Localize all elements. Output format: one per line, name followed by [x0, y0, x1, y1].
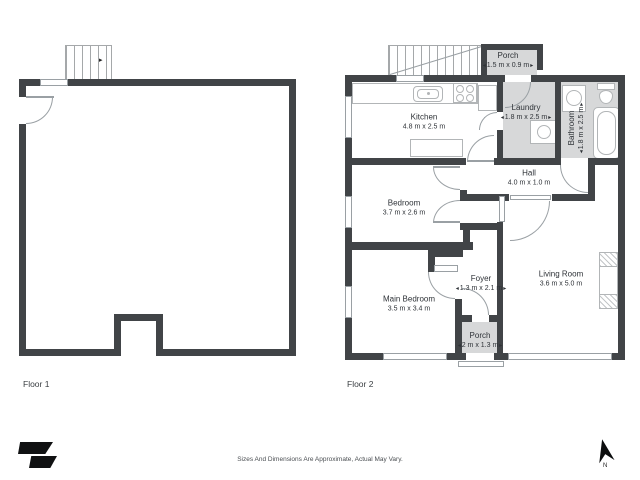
room-name: Porch [482, 51, 534, 61]
wall-segment [588, 158, 625, 165]
disclaimer-text: Sizes And Dimensions Are Approximate, Ac… [0, 456, 640, 463]
porch-step [458, 361, 504, 367]
toilet-tank [597, 83, 615, 90]
wall-segment [345, 158, 466, 165]
bedroom-closet-door-arc [433, 200, 460, 223]
window-marker [40, 79, 68, 86]
wall-segment [455, 315, 472, 322]
wall-segment [460, 223, 500, 230]
door-opening [505, 75, 531, 82]
stair-direction-arrow-icon: ▸ [99, 57, 103, 64]
room-label-bathroom: Bathroom ◂1.8 m x 2.5 m▸ [567, 102, 587, 154]
room-label-living-room: Living Room 3.6 m x 5.0 m [539, 270, 583, 289]
wall-segment [618, 75, 625, 360]
wall-segment [156, 349, 296, 356]
brand-logo-icon [18, 442, 53, 454]
room-name: Living Room [539, 270, 583, 280]
room-name: Hall [508, 169, 550, 179]
room-dims: 4.8 m x 2.5 m [403, 123, 445, 132]
compass-north-label: N [603, 463, 607, 469]
closet-shelf-marker [499, 196, 505, 222]
window-marker [508, 353, 612, 360]
floorplan-page: ▸ Floor 1 [0, 0, 640, 480]
cased-opening-marker [510, 195, 551, 200]
fridge [478, 85, 497, 111]
room-dims: ◂1.3 m x 2.1 m▸ [455, 284, 507, 294]
wall-segment [552, 194, 588, 201]
closet-slider-marker [434, 265, 458, 272]
stove-burner [466, 94, 474, 102]
dim-arrow-right-icon: ▸ [502, 286, 507, 292]
floor1-stairs [65, 45, 112, 80]
wall-segment [460, 190, 467, 200]
room-name: Bathroom [567, 102, 577, 154]
bathroom-door-arc [560, 165, 588, 193]
door-leaf [467, 160, 494, 162]
wall-segment [114, 314, 163, 321]
wall-segment [588, 165, 595, 201]
room-label-bedroom: Bedroom 3.7 m x 2.6 m [383, 199, 425, 218]
kitchen-island [410, 139, 463, 157]
wall-unit-shelf [599, 252, 618, 267]
room-label-porch-top: Porch ◂1.5 m x 0.9 m▸ [482, 51, 534, 71]
room-dims: 3.6 m x 5.0 m [539, 280, 583, 289]
window-marker [345, 196, 352, 228]
room-dims: ◂1.8 m x 2.5 m▸ [577, 102, 587, 154]
room-dims: ◂1.5 m x 0.9 m▸ [482, 61, 534, 71]
wall-segment [289, 79, 296, 356]
dim-arrow-right-icon: ▸ [498, 343, 503, 349]
bedroom-door-arc [433, 167, 460, 190]
door-opening [19, 97, 26, 124]
room-name: Bedroom [383, 199, 425, 209]
washing-machine-drum [537, 125, 551, 139]
room-dims: 3.7 m x 2.6 m [383, 209, 425, 218]
stove-burner [456, 94, 464, 102]
kitchen-door-arc [467, 135, 494, 162]
dim-arrow-right-icon: ▸ [579, 102, 585, 107]
wall-segment [497, 130, 503, 158]
porch-wall [481, 44, 543, 50]
door-leaf [433, 221, 460, 223]
sink-faucet-dot [427, 92, 430, 95]
window-marker [345, 286, 352, 318]
floor1-label: Floor 1 [23, 379, 49, 389]
room-label-main-bedroom: Main Bedroom 3.5 m x 3.4 m [383, 295, 435, 314]
dim-arrow-right-icon: ▸ [529, 63, 534, 69]
room-dims: ◂1.8 m x 2.5 m▸ [500, 113, 552, 123]
room-label-kitchen: Kitchen 4.8 m x 2.5 m [403, 113, 445, 132]
dim-arrow-right-icon: ▸ [547, 115, 552, 121]
wall-segment [555, 82, 561, 158]
wall-segment [494, 158, 561, 165]
room-name: Kitchen [403, 113, 445, 123]
door-arc [26, 97, 53, 124]
floor2-label: Floor 2 [347, 379, 373, 389]
room-dims: 3.5 m x 3.4 m [383, 305, 435, 314]
room-label-laundry: Laundry ◂1.8 m x 2.5 m▸ [500, 103, 552, 123]
kitchen-laundry-door-arc [479, 112, 497, 130]
wall-segment [19, 349, 121, 356]
room-name: Laundry [500, 103, 552, 113]
dim-arrow-left-icon: ◂ [579, 149, 585, 154]
window-marker [396, 75, 424, 82]
bathtub-basin [597, 111, 616, 155]
wall-unit-shelf [599, 294, 618, 309]
window-marker [345, 96, 352, 138]
room-dims: 4.0 m x 1.0 m [508, 179, 550, 188]
room-name: Main Bedroom [383, 295, 435, 305]
room-label-hall: Hall 4.0 m x 1.0 m [508, 169, 550, 188]
stove-burner [456, 85, 464, 93]
stove-burner [466, 85, 474, 93]
wall-segment [345, 242, 473, 250]
room-label-foyer: Foyer ◂1.3 m x 2.1 m▸ [455, 274, 507, 294]
room-label-porch-bottom: Porch ◂2 m x 1.3 m▸ [457, 331, 504, 351]
room-name: Foyer [455, 274, 507, 284]
living-room-door-arc [510, 201, 550, 241]
window-marker [383, 353, 447, 360]
room-dims: ◂2 m x 1.3 m▸ [457, 341, 504, 351]
room-name: Porch [457, 331, 504, 341]
